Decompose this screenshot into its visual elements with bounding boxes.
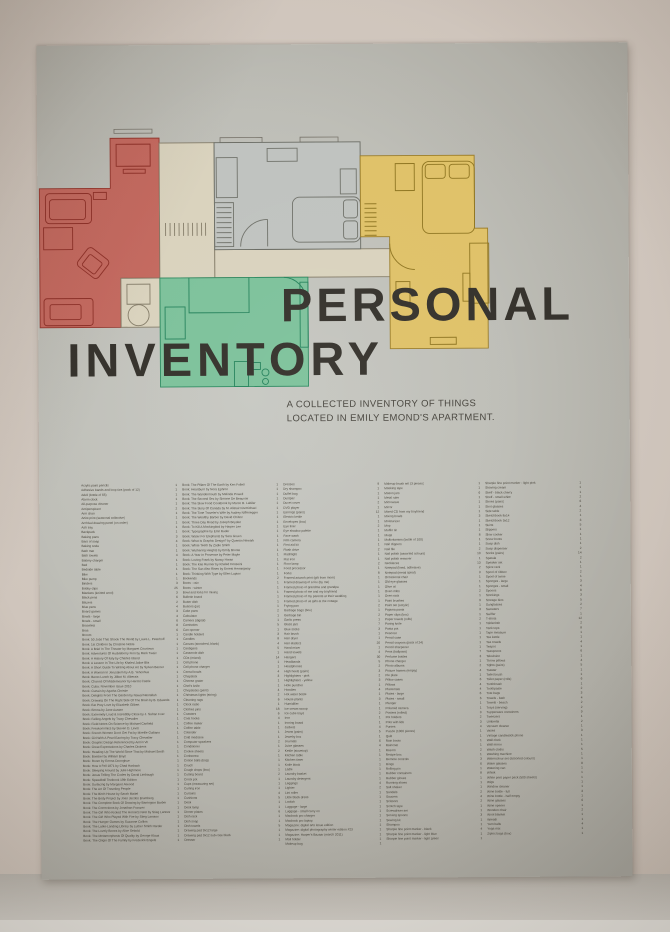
poster: PERSONAL INVENTORY A COLLECTED INVENTORY… xyxy=(36,42,632,880)
poster-subtitle-line1: A COLLECTED INVENTORY OF THINGS xyxy=(287,397,495,412)
inventory-list: Acrylic paint pencils1Adhesive bands and… xyxy=(81,480,583,855)
inventory-column-5: Sharpie fine point marker - light pink1S… xyxy=(485,480,583,853)
inventory-column-3: Dresses9Dry shampoo1Duffel bag1Dustpan1D… xyxy=(283,482,381,855)
floor-strip-lower xyxy=(0,920,670,932)
window-mark xyxy=(300,137,338,142)
hallway-strip xyxy=(215,249,391,278)
window-mark xyxy=(114,129,152,133)
poster-title-line1: PERSONAL xyxy=(281,280,574,329)
window-mark xyxy=(220,137,262,142)
floor-strip-upper xyxy=(0,874,670,920)
inventory-column-4: Makeup brush set (3 pieces)1Masking tape… xyxy=(384,481,482,854)
inventory-item: Ziploc bags (box)1 xyxy=(487,831,583,836)
kitchenette xyxy=(121,278,160,327)
inventory-item: Book: The Origin Of The Family by Freder… xyxy=(83,838,179,843)
inventory-column-1: Acrylic paint pencils1Adhesive bands and… xyxy=(81,483,179,856)
inventory-item: Sharpie fine point marker - light green1 xyxy=(386,836,482,841)
inventory-item: Dresser1 xyxy=(184,837,280,842)
inventory-item: Makeup bag1 xyxy=(285,841,381,846)
poster-subtitle: A COLLECTED INVENTORY OF THINGS LOCATED … xyxy=(287,397,495,425)
room-bedroom xyxy=(214,142,361,250)
poster-title-line2: INVENTORY xyxy=(67,335,384,384)
inventory-column-2: Book: The Pillars Of The Earth by Ken Fo… xyxy=(182,482,280,855)
poster-subtitle-line2: LOCATED IN EMILY EMOND'S APARTMENT. xyxy=(287,411,495,426)
